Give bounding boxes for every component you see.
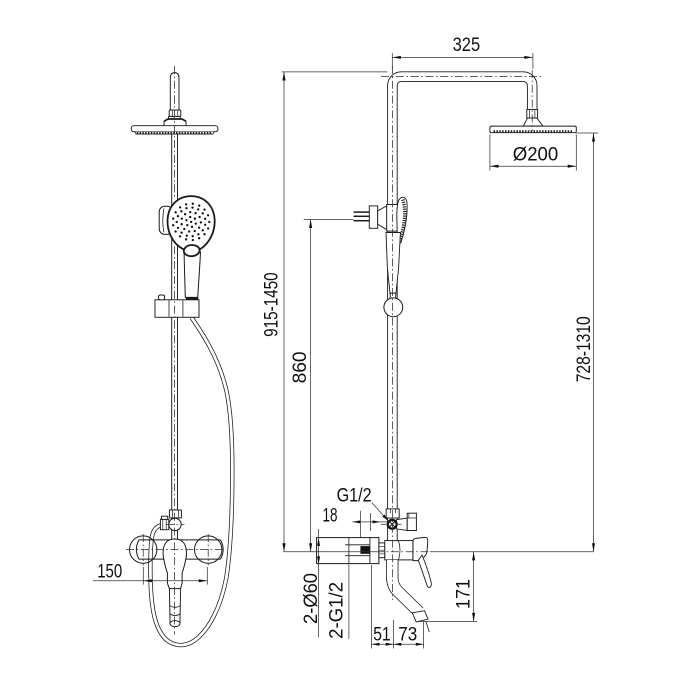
svg-text:G1/2: G1/2 [337, 486, 372, 507]
svg-text:171: 171 [454, 579, 475, 609]
svg-text:728-1310: 728-1310 [574, 316, 595, 382]
svg-text:860: 860 [290, 351, 311, 383]
svg-text:325: 325 [453, 35, 481, 56]
svg-text:Ø200: Ø200 [513, 144, 559, 165]
svg-text:2-G1/2: 2-G1/2 [327, 582, 348, 639]
svg-text:915-1450: 915-1450 [261, 272, 282, 337]
svg-text:150: 150 [97, 562, 122, 583]
svg-text:18: 18 [323, 506, 338, 527]
svg-text:73: 73 [398, 624, 417, 645]
svg-text:51: 51 [373, 624, 391, 645]
